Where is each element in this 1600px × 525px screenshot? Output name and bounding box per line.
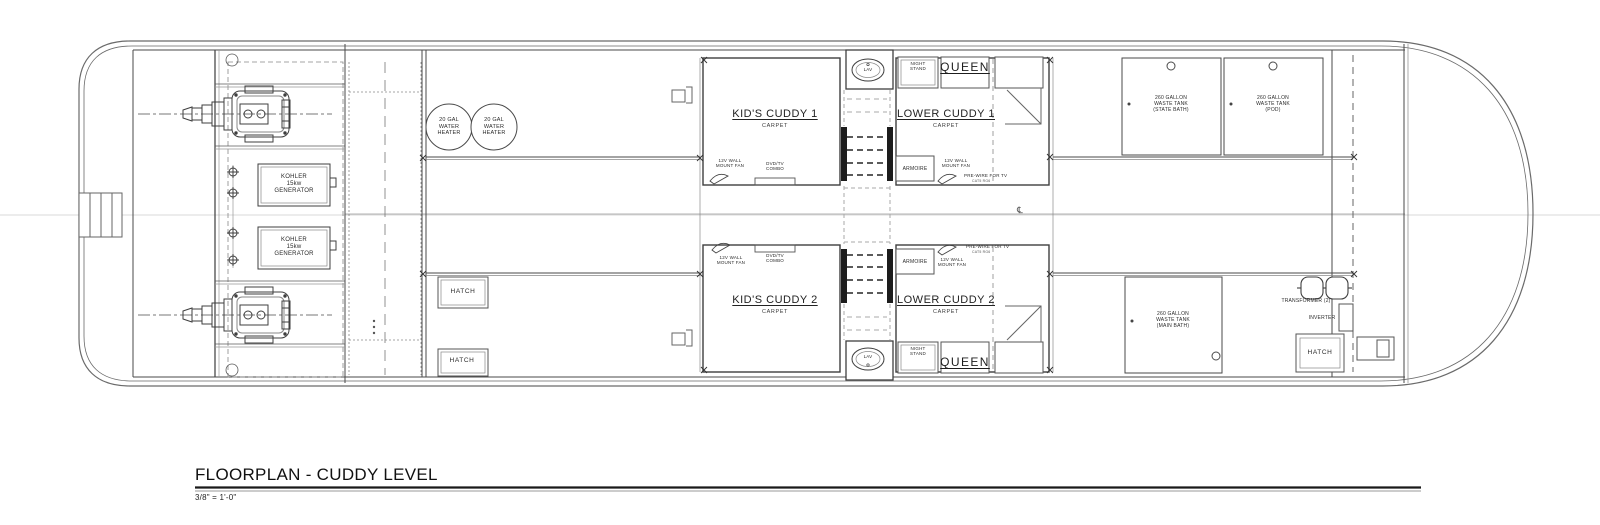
bow-step [1357,337,1394,360]
wall-light-icon-top [672,87,692,103]
hatch-label-1: HATCH [451,288,476,296]
water-heater-label-2: 20 GAL WATER HEATER [482,117,505,137]
generator-label-1: KOHLER 15kw GENERATOR [274,174,313,196]
room-label-kids-cuddy-2: KID'S CUDDY 2 [732,294,817,307]
fan-icon-1 [710,174,728,184]
generator-label-2: KOHLER 15kw GENERATOR [274,237,313,259]
transformer-units [1297,277,1352,299]
prewire-tv-label-1: PRE-WIRE FOR TV [964,173,1007,178]
tank-strip-dashed [349,62,421,375]
sheet-scale: 3/8" = 1'-0" [195,493,236,503]
sheet-title: FLOORPLAN - CUDDY LEVEL [195,465,438,485]
lav-label-1: LAV [864,67,873,72]
floor-label-kids-cuddy-2: CARPET [762,309,788,316]
transformer-label: TRANSFORMER (2) [1281,298,1330,304]
night-stand-label-2: NIGHT STAND [910,346,926,357]
queen-bed-label-1: QUEEN [940,60,990,74]
floor-label-kids-cuddy-1: CARPET [762,123,788,130]
prewire-tv-sub-1: CAT5 RG6 [972,179,990,183]
title-rule [195,488,1421,492]
armoire-label-2: ARMOIRE [903,259,928,265]
prewire-tv-label-2: PRE-WIRE FOR TV [966,244,1009,249]
floor-label-lower-cuddy-2: CARPET [933,309,959,316]
stairs-lower [841,249,893,340]
fan-label-2: 12V WALL MOUNT FAN [942,158,970,169]
fan-label-4: 12V WALL MOUNT FAN [938,257,966,268]
lav-2-fixture [846,341,893,380]
inverter-unit [1339,304,1353,331]
dvd-tv-label-2: DVD/TV COMBO [766,253,784,264]
wall-light-icon-bottom [672,330,692,346]
boat-centerline [0,214,1600,215]
room-label-lower-cuddy-2: LOWER CUDDY 2 [897,294,995,307]
room-label-lower-cuddy-1: LOWER CUDDY 1 [897,108,995,121]
queen-bed-label-2: QUEEN [940,355,990,369]
fan-label-3: 12V WALL MOUNT FAN [717,255,745,266]
stairs-upper [841,90,893,181]
fan-icon-4 [938,245,956,255]
floorplan-drawing [0,0,1600,525]
fan-label-1: 12V WALL MOUNT FAN [716,158,744,169]
inverter-label: INVERTER [1309,315,1336,321]
dvd-tv-label-1: DVD/TV COMBO [766,161,784,172]
floorplan-sheet: KID'S CUDDY 1 CARPET LOWER CUDDY 1 CARPE… [0,0,1600,525]
floor-label-lower-cuddy-1: CARPET [933,123,959,130]
waste-tank-pod-label: 260 GALLON WASTE TANK (POD) [1256,95,1290,113]
engine-starboard [138,287,332,343]
centerline-symbol: ℄ [1017,205,1023,216]
fan-icon-2 [938,174,956,184]
engine-port [138,86,332,142]
waste-tank-state-bath-label: 260 GALLON WASTE TANK (STATE BATH) [1153,95,1188,113]
armoire-label-1: ARMOIRE [903,166,928,172]
lav-label-2: LAV [864,354,873,359]
hatch-label-3: HATCH [1308,349,1333,357]
hatch-label-2: HATCH [450,357,475,365]
night-stand-label-1: NIGHT STAND [910,61,926,72]
wall-light-icons [672,87,692,346]
waste-tank-main-bath-label: 260 GALLON WASTE TANK (MAIN BATH) [1156,311,1190,329]
water-heater-label-1: 20 GAL WATER HEATER [437,117,460,137]
stern-ladder [79,193,122,237]
room-label-kids-cuddy-1: KID'S CUDDY 1 [732,108,817,121]
prewire-tv-sub-2: CAT5 RG6 [972,250,990,254]
